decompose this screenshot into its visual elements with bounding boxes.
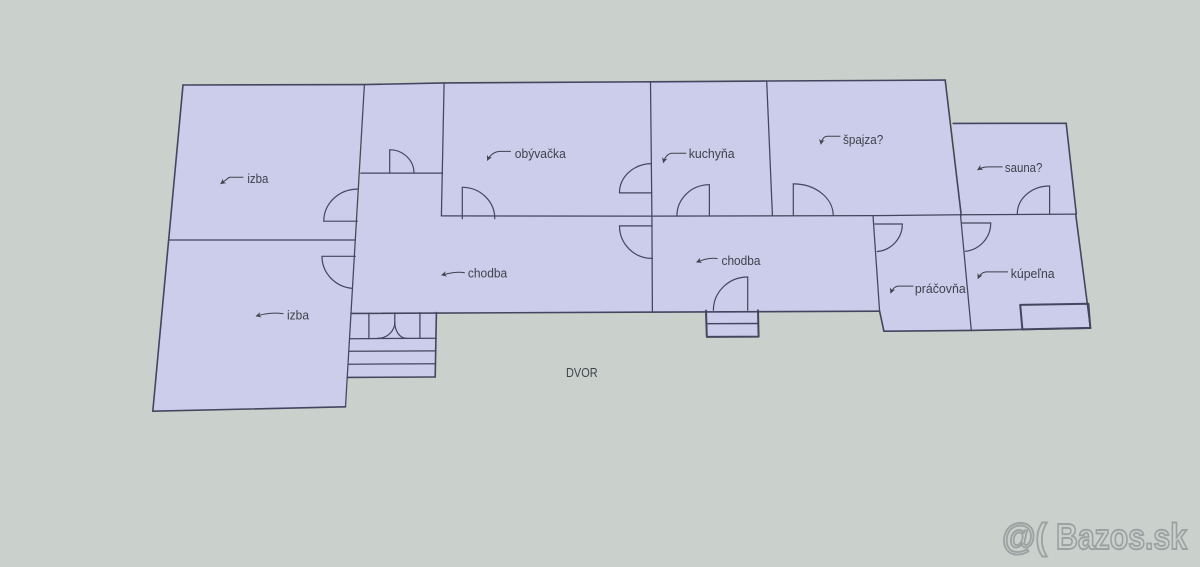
svg-text:izba: izba bbox=[287, 307, 310, 322]
svg-text:obývačka: obývačka bbox=[515, 146, 567, 161]
svg-text:špajza?: špajza? bbox=[843, 132, 883, 147]
svg-text:sauna?: sauna? bbox=[1005, 160, 1043, 175]
svg-text:chodba: chodba bbox=[468, 265, 508, 280]
svg-text:práčovňa: práčovňa bbox=[915, 281, 967, 296]
svg-text:izba: izba bbox=[247, 171, 269, 186]
svg-text:kúpeľna: kúpeľna bbox=[1011, 266, 1056, 281]
svg-text:kuchyňa: kuchyňa bbox=[689, 146, 736, 161]
svg-text:chodba: chodba bbox=[722, 253, 762, 268]
svg-text:Bazos.sk: Bazos.sk bbox=[1056, 516, 1188, 557]
svg-text:@(: @( bbox=[1002, 516, 1047, 557]
svg-text:DVOR: DVOR bbox=[566, 366, 598, 380]
